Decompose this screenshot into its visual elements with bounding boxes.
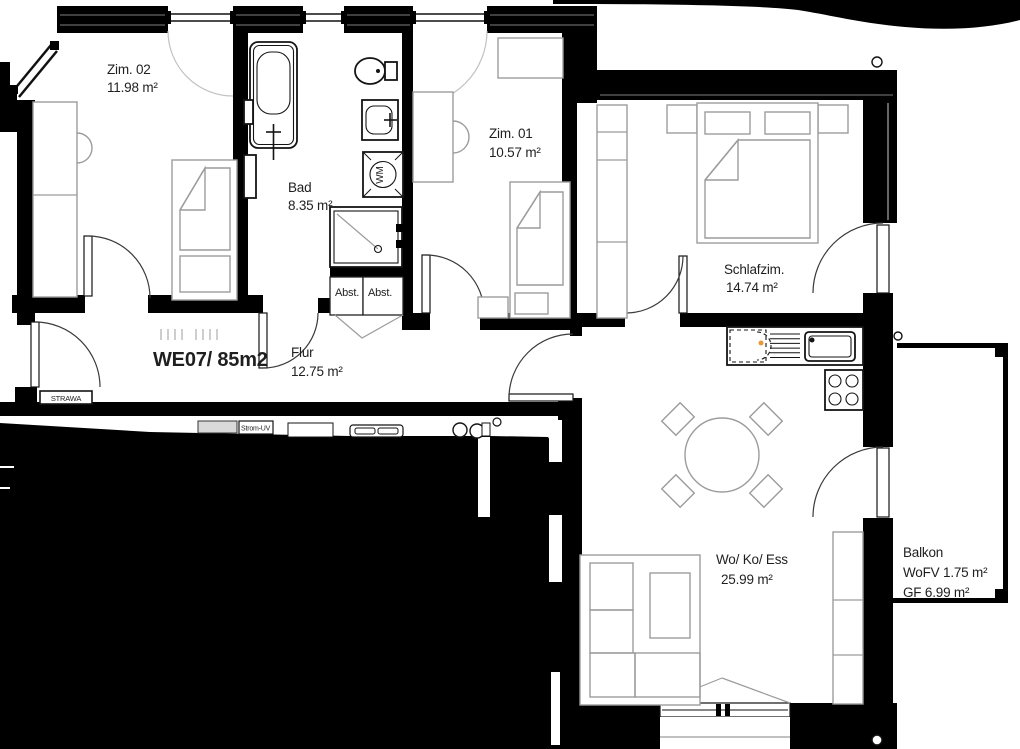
wohn-wall-window-slot [549, 420, 562, 462]
wall-right-mid [863, 293, 893, 447]
room-label-zim02: Zim. 02 11.98 m² [107, 62, 158, 95]
sideboard [833, 532, 863, 704]
room-area: 12.75 m² [291, 364, 343, 379]
bad-radiator [244, 155, 256, 198]
wall-outer-left-top [0, 88, 17, 132]
wall-zim02-bottom-a [12, 295, 85, 313]
wall-step-zim01 [562, 33, 597, 103]
floorplan-drawing: WM [0, 0, 1020, 749]
zim01-door [422, 255, 484, 313]
blacked-left-line [0, 487, 10, 489]
blacked-top-right-region [553, 0, 1020, 29]
room-name: Zim. 01 [489, 126, 533, 141]
downpipe [894, 332, 902, 340]
zim01-furniture [413, 38, 570, 318]
tap-marker [759, 341, 764, 346]
dining-table [685, 418, 759, 492]
closet-fold-doors [335, 315, 403, 338]
room-area: 14.74 m² [726, 280, 778, 295]
corridor-box [288, 423, 333, 437]
dining-chair [662, 403, 695, 436]
nightstand [818, 105, 848, 133]
dining-chair [750, 403, 783, 436]
room-label-zim01: Zim. 01 10.57 m² [489, 126, 541, 160]
wohn-wall-window-slot [551, 672, 560, 745]
bathtub [244, 42, 297, 198]
radiator-ticks [161, 329, 217, 340]
wardrobe [597, 105, 627, 318]
washing-machine: WM [363, 152, 403, 197]
nightstand [478, 297, 508, 318]
room-name: Wo/ Ko/ Ess [716, 552, 788, 567]
schlafzimmer-furniture [597, 103, 848, 318]
cabinet [498, 38, 563, 78]
floorplan-canvas: WM [0, 0, 1020, 749]
wm-label: WM [375, 166, 386, 183]
wardrobe-handle-arc [77, 133, 92, 163]
wall-flur-wohn-top [570, 313, 582, 336]
wall-bottom-left-block [582, 703, 660, 749]
corridor-dot [493, 418, 501, 426]
wall-zim01-bottom-a [402, 313, 430, 330]
balcony-gf: GF 6.99 m² [903, 585, 970, 600]
dining-chair [662, 475, 695, 508]
blacked-bottom-left-region [0, 423, 560, 749]
window-corner-diagonal [9, 41, 59, 97]
grab-rail [244, 100, 253, 124]
room-name: Bad [288, 180, 311, 195]
downpipe [872, 735, 882, 745]
room-area: 25.99 m² [721, 572, 773, 587]
wall-right-schlafzim [863, 100, 897, 223]
wall-schlafzim-bottom-b [680, 313, 863, 327]
wardrobe [33, 102, 77, 297]
corridor-box [198, 421, 237, 433]
room-label-bad: Bad 8.35 m² [288, 180, 333, 213]
window-zim02 [166, 8, 235, 96]
wohnzimmer-balcony-door [813, 447, 889, 517]
desk [413, 92, 453, 182]
schlafzimmer-door [626, 256, 687, 313]
nightstand [667, 105, 697, 133]
entry-door [31, 322, 100, 387]
double-bed [697, 103, 818, 243]
schlafzimmer-balcony-door [813, 223, 889, 293]
balcony [893, 332, 1008, 603]
wall-entry-post [15, 387, 37, 404]
unit-label: WE07/ 85m2 [153, 349, 268, 371]
wall-top-3 [344, 6, 413, 33]
corridor-fixture [350, 425, 403, 437]
balcony-post [995, 346, 1007, 357]
corridor-burner [453, 423, 467, 437]
window-bad [301, 8, 346, 31]
coffee-table [650, 573, 690, 638]
dining-chair [750, 475, 783, 508]
desk-chair [453, 121, 469, 153]
room-area: 11.98 m² [107, 80, 158, 95]
blacked-left-line [0, 466, 14, 468]
abst-label-1: Abst. [335, 287, 359, 299]
corridor-box [482, 423, 490, 436]
balcony-label: Balkon WoFV 1.75 m² GF 6.99 m² [903, 545, 988, 600]
room-label-schlafzimmer: Schlafzim. 14.74 m² [724, 262, 784, 295]
room-label-wohnzimmer: Wo/ Ko/ Ess 25.99 m² [716, 552, 788, 587]
kitchen [727, 327, 863, 410]
stove [825, 370, 863, 410]
wall-top-2 [233, 6, 303, 33]
bathroom-sink [362, 100, 398, 140]
faucet-dot [810, 338, 815, 343]
window-zim01 [411, 8, 489, 105]
room-area: 8.35 m² [288, 198, 333, 213]
wall-top-1 [57, 6, 168, 33]
room-area: 10.57 m² [489, 145, 541, 160]
wall-right-low [863, 518, 893, 730]
abst-label-2: Abst. [368, 287, 392, 299]
room-name: Schlafzim. [724, 262, 784, 277]
room-label-flur: Flur 12.75 m² [291, 345, 343, 379]
flur-wohnzimmer-door [509, 334, 573, 401]
shower [330, 207, 405, 267]
wohn-wall-window-slot [549, 515, 562, 582]
room-name: Zim. 02 [107, 62, 151, 77]
toilet [355, 58, 397, 84]
downpipe [872, 57, 882, 67]
strom-uv-label: Strom-UV [241, 426, 271, 433]
strawa-label: STRAWA [51, 394, 82, 403]
balcony-name: Balkon [903, 545, 943, 560]
wall-corner-wedge [0, 62, 10, 88]
wall-top-4 [487, 6, 597, 33]
balcony-rail-right [1003, 343, 1008, 603]
zim02-door [84, 236, 150, 298]
room-name: Flur [291, 345, 314, 360]
balcony-post [995, 589, 1007, 600]
wall-bad-door-post [318, 298, 330, 313]
balcony-wofv: WoFV 1.75 m² [903, 565, 988, 580]
blacked-white-slot [478, 437, 490, 517]
balcony-rail-top [897, 343, 1008, 348]
